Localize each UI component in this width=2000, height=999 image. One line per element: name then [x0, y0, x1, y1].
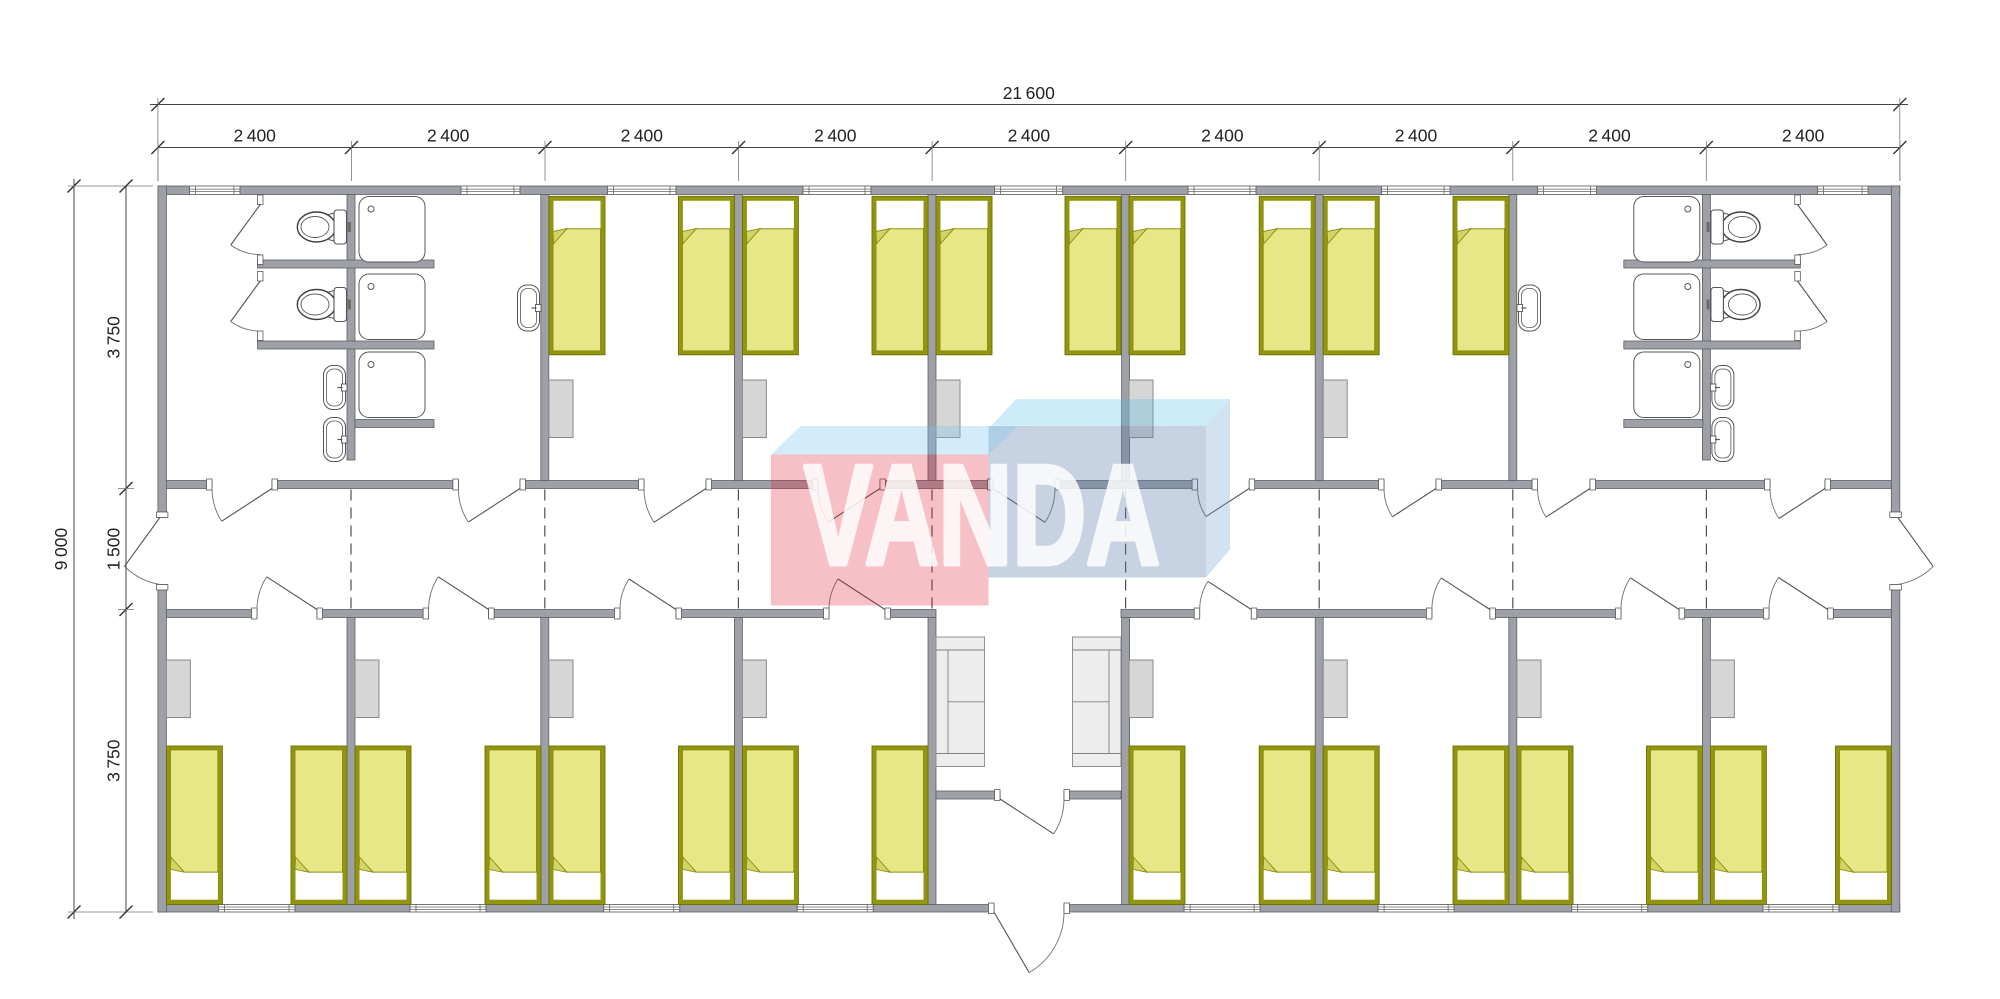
svg-text:2 400: 2 400: [233, 126, 276, 146]
svg-text:3 750: 3 750: [104, 316, 124, 359]
svg-text:21 600: 21 600: [1003, 83, 1055, 103]
svg-text:1 500: 1 500: [104, 528, 124, 571]
svg-text:2 400: 2 400: [1008, 126, 1051, 146]
svg-text:2 400: 2 400: [814, 126, 857, 146]
svg-text:9 000: 9 000: [51, 528, 71, 571]
svg-text:2 400: 2 400: [427, 126, 470, 146]
svg-text:2 400: 2 400: [1588, 126, 1631, 146]
svg-text:2 400: 2 400: [1782, 126, 1825, 146]
svg-text:VANDA: VANDA: [804, 437, 1160, 595]
svg-text:3 750: 3 750: [104, 739, 124, 782]
svg-text:2 400: 2 400: [1395, 126, 1438, 146]
svg-text:2 400: 2 400: [621, 126, 664, 146]
svg-text:2 400: 2 400: [1201, 126, 1244, 146]
